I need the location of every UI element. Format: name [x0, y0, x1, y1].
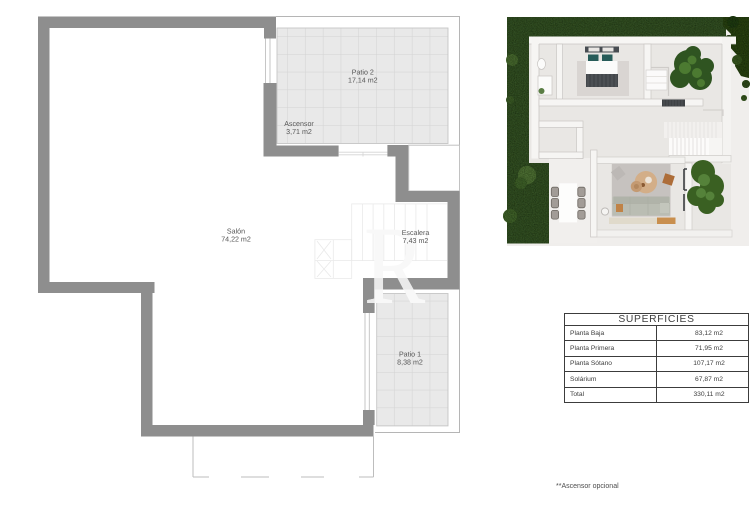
svg-text:Salón: Salón: [227, 228, 245, 236]
svg-text:17,14 m2: 17,14 m2: [348, 77, 378, 85]
svg-text:3,71 m2: 3,71 m2: [286, 128, 312, 136]
svg-text:Ascensor: Ascensor: [284, 120, 314, 128]
svg-text:8,38 m2: 8,38 m2: [397, 359, 423, 367]
svg-text:74,22 m2: 74,22 m2: [221, 236, 251, 244]
svg-text:Escalera: Escalera: [402, 229, 430, 237]
svg-text:Patio 1: Patio 1: [399, 351, 421, 359]
svg-text:Patio 2: Patio 2: [352, 69, 374, 77]
svg-text:7,43 m2: 7,43 m2: [403, 237, 429, 245]
